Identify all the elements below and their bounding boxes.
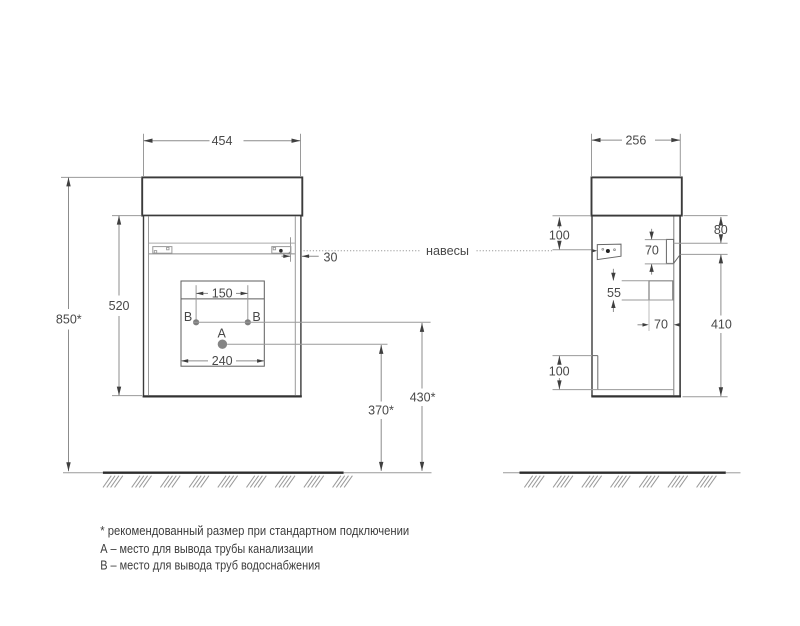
- svg-text:850*: 850*: [56, 313, 82, 327]
- svg-text:454: 454: [212, 134, 233, 148]
- svg-text:70: 70: [645, 244, 659, 258]
- svg-text:B: B: [252, 310, 260, 324]
- svg-text:30: 30: [324, 250, 338, 264]
- svg-text:A: A: [218, 327, 227, 341]
- svg-text:B: B: [184, 310, 192, 324]
- svg-text:100: 100: [549, 229, 570, 243]
- svg-text:150: 150: [212, 287, 233, 301]
- svg-text:55: 55: [607, 286, 621, 300]
- svg-text:В – место для вывода труб водо: В – место для вывода труб водоснабжения: [100, 559, 320, 573]
- svg-text:410: 410: [711, 317, 732, 331]
- svg-text:370*: 370*: [368, 403, 394, 417]
- svg-text:520: 520: [109, 299, 130, 313]
- svg-text:240: 240: [212, 354, 233, 368]
- svg-text:256: 256: [625, 133, 646, 147]
- svg-text:80: 80: [714, 223, 728, 237]
- svg-text:навесы: навесы: [426, 244, 469, 258]
- svg-text:* рекомендованный размер при с: * рекомендованный размер при стандартном…: [100, 524, 409, 538]
- svg-text:А – место для вывода трубы кан: А – место для вывода трубы канализации: [100, 542, 313, 556]
- svg-text:70: 70: [654, 318, 668, 332]
- svg-text:100: 100: [549, 365, 570, 379]
- svg-text:430*: 430*: [410, 390, 436, 404]
